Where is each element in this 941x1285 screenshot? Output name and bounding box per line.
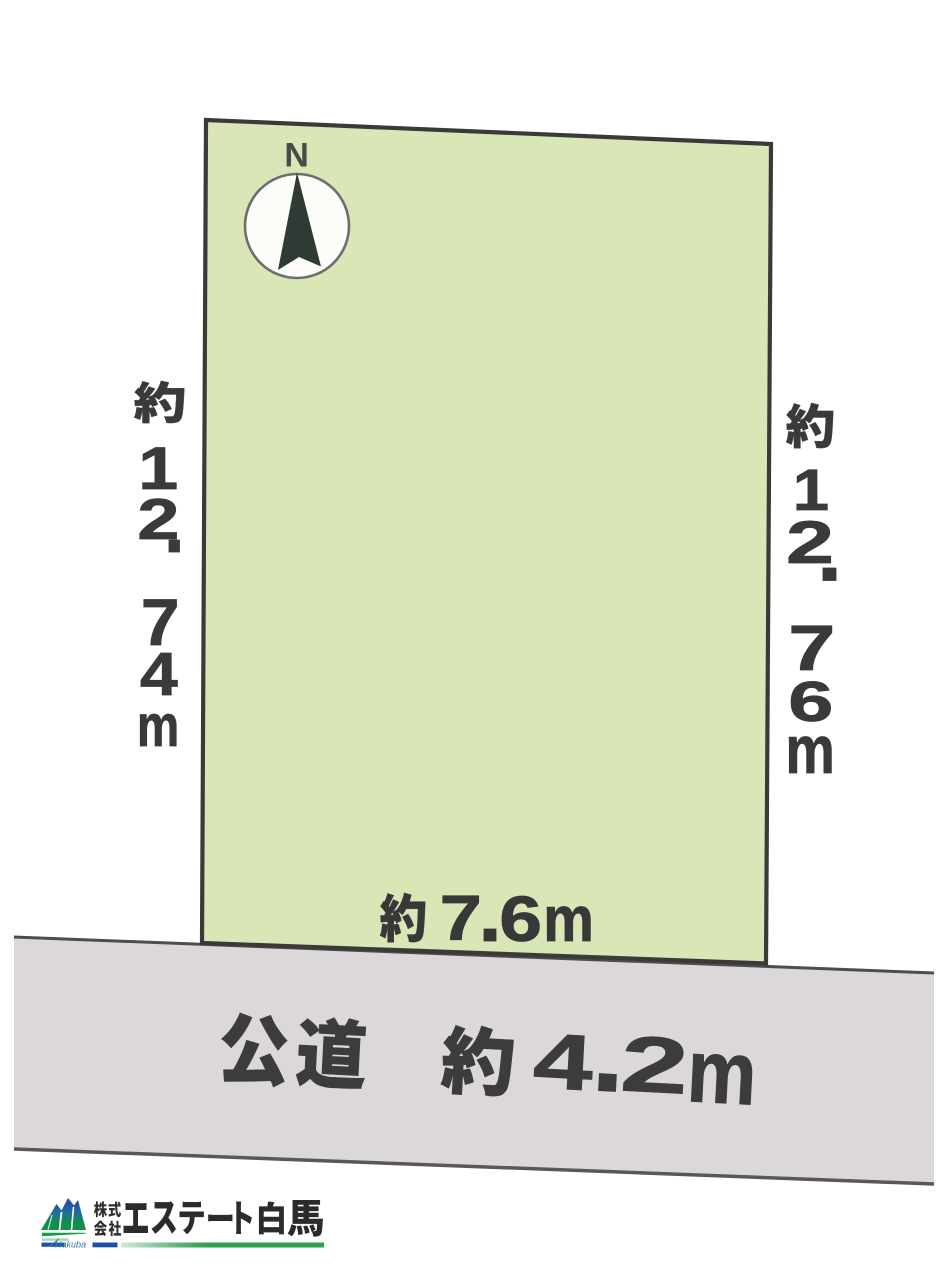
svg-text:2: 2 xyxy=(786,509,834,576)
svg-text:2: 2 xyxy=(618,1019,690,1111)
svg-text:4: 4 xyxy=(531,1016,595,1107)
svg-text:6: 6 xyxy=(499,883,542,954)
svg-text:7: 7 xyxy=(440,882,482,954)
svg-text:Hakuba: Hakuba xyxy=(55,1240,86,1250)
svg-text:m: m xyxy=(685,1020,760,1124)
svg-text:N: N xyxy=(284,137,308,175)
svg-text:m: m xyxy=(137,693,179,759)
svg-text:m: m xyxy=(543,883,594,955)
svg-text:m: m xyxy=(785,713,834,788)
